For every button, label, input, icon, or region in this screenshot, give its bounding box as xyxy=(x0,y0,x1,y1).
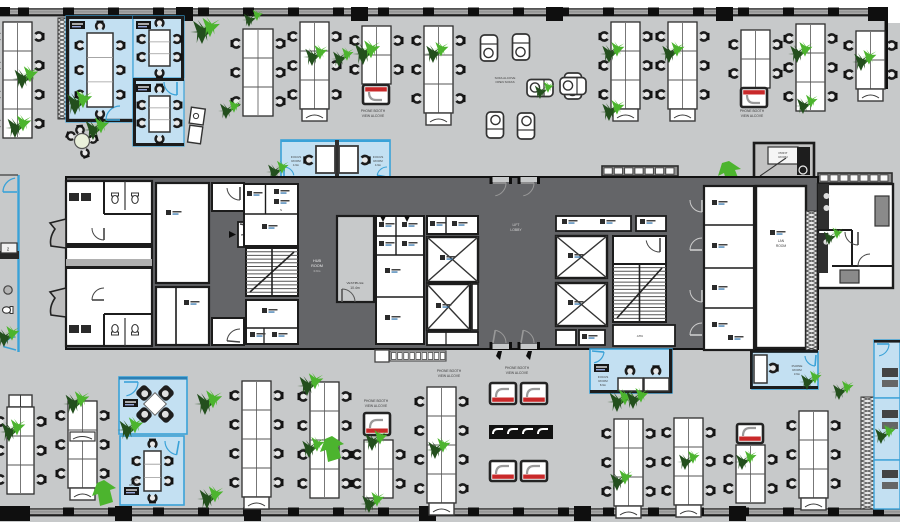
svg-text:PHONE BOOTH: PHONE BOOTH xyxy=(364,399,389,403)
svg-text:PHONE BOOTH: PHONE BOOTH xyxy=(361,109,386,113)
svg-text:PHONE BOOTH: PHONE BOOTH xyxy=(437,369,462,373)
svg-text:HUB: HUB xyxy=(313,259,321,263)
svg-text:VIEW ALCOVE: VIEW ALCOVE xyxy=(362,114,385,118)
svg-text:4.9m: 4.9m xyxy=(293,163,300,167)
svg-text:LIFT: LIFT xyxy=(513,223,520,227)
svg-text:VIEW ALCOVE: VIEW ALCOVE xyxy=(506,371,529,375)
svg-text:VIEW ALCOVE: VIEW ALCOVE xyxy=(365,404,388,408)
svg-text:ROOM: ROOM xyxy=(776,244,787,248)
svg-text:4.9m: 4.9m xyxy=(375,163,382,167)
svg-text:0.9m: 0.9m xyxy=(314,269,321,273)
svg-text:3.6m: 3.6m xyxy=(794,372,801,376)
svg-text:VIEW ALCOVE: VIEW ALCOVE xyxy=(438,374,461,378)
svg-text:AHU: AHU xyxy=(637,334,644,338)
svg-text:OPEN SOFAS: OPEN SOFAS xyxy=(495,80,514,84)
svg-text:PHONE BOOTH: PHONE BOOTH xyxy=(740,109,765,113)
svg-text:ROOM: ROOM xyxy=(778,155,788,159)
svg-text:8.9m: 8.9m xyxy=(600,383,607,387)
svg-text:MTG: MTG xyxy=(131,478,138,482)
svg-text:VIEW ALCOVE: VIEW ALCOVE xyxy=(741,114,764,118)
svg-text:ROOM: ROOM xyxy=(311,264,323,268)
svg-text:10.4m: 10.4m xyxy=(350,286,360,290)
svg-text:LOBBY: LOBBY xyxy=(510,228,522,232)
svg-text:PHONE BOOTH: PHONE BOOTH xyxy=(505,366,530,370)
svg-text:LAN: LAN xyxy=(778,239,785,243)
svg-text:VESTIBULE: VESTIBULE xyxy=(346,281,363,285)
svg-text:S: S xyxy=(280,208,282,212)
svg-text:ROOM: ROOM xyxy=(129,483,139,487)
